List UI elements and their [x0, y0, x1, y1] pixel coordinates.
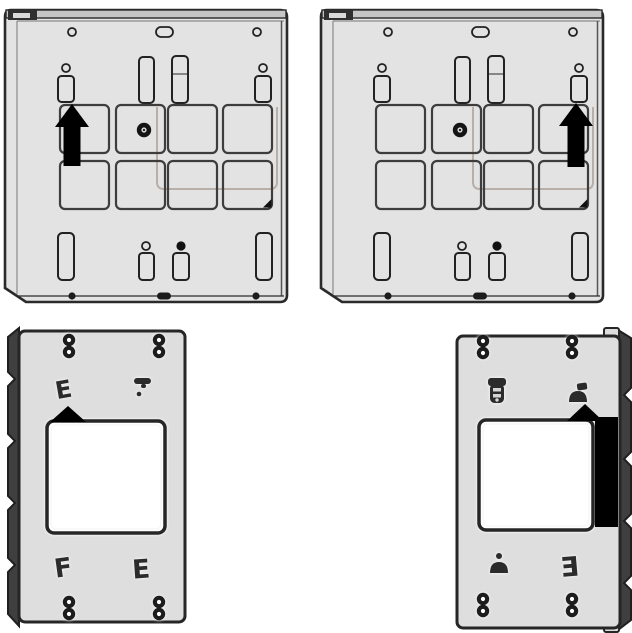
top-right-plate [321, 10, 603, 302]
glyph-lower-right: E [131, 554, 151, 585]
bottom-left-bracket: E F E [8, 328, 185, 626]
glyph-lower-right: Ǝ [559, 551, 580, 583]
cutout-window [479, 420, 593, 530]
bottom-right-bracket: Ǝ [457, 328, 631, 632]
top-left-plate [5, 10, 287, 302]
mounting-diagram: E F E [0, 0, 632, 633]
left-flange [8, 328, 19, 626]
cutout-window [47, 421, 165, 533]
glyph-upper-left [488, 378, 506, 403]
diagram-page: E F E [0, 0, 632, 633]
